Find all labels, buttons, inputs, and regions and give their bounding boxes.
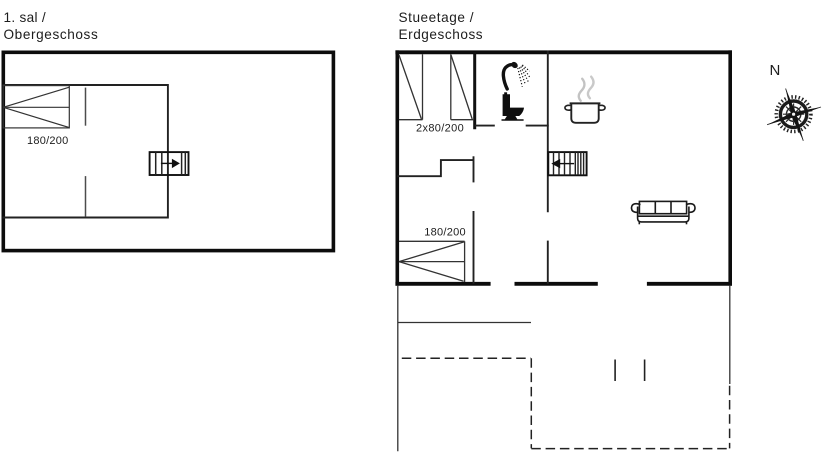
svg-text:Obergeschoss: Obergeschoss [4,27,99,42]
svg-text:2x80/200: 2x80/200 [416,123,464,135]
svg-text:Stueetage /: Stueetage / [399,10,475,25]
svg-text:Erdgeschoss: Erdgeschoss [399,27,484,42]
svg-text:1. sal /: 1. sal / [4,10,46,25]
svg-text:180/200: 180/200 [27,135,69,147]
svg-text:180/200: 180/200 [424,227,466,239]
svg-text:N: N [770,62,781,79]
